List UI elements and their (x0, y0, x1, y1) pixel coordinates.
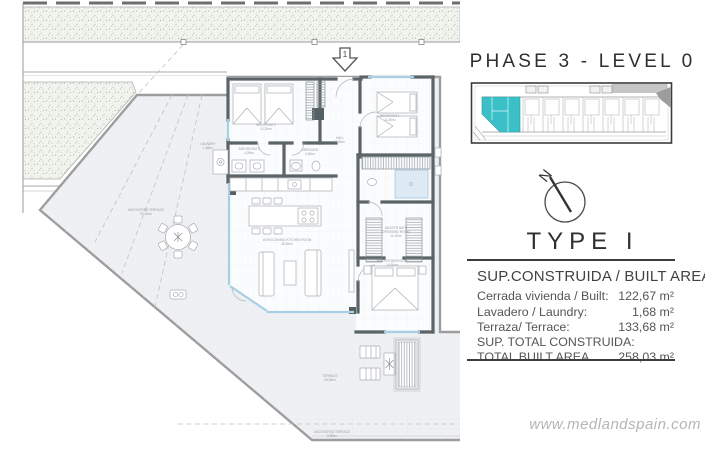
total-value: 258,03 m² (618, 350, 674, 365)
area-table: Cerrada vivienda / Built: 122,67 m² Lava… (477, 289, 674, 336)
divider-top (467, 259, 675, 261)
site-road-band (612, 85, 667, 93)
site-plan-overview (470, 80, 674, 148)
row-label: Cerrada vivienda / Built: (477, 289, 609, 305)
divider-bottom (467, 359, 675, 361)
total-label-line2: TOTAL BUILT AREA (477, 350, 589, 365)
svg-text:11,80m²: 11,80m² (384, 118, 395, 122)
table-row: Lavadero / Laundry: 1,68 m² (477, 305, 674, 321)
svg-text:8,30m²: 8,30m² (335, 140, 345, 144)
built-area-subtitle: SUP.CONSTRUIDA / BUILT AREA (477, 268, 675, 285)
svg-text:4,25m²: 4,25m² (244, 151, 254, 155)
type-title: TYPE I (460, 228, 705, 256)
entrance-number: 1 (343, 50, 348, 59)
svg-text:4,60m²: 4,60m² (305, 152, 315, 156)
watermark: www.medlandspain.com (505, 416, 701, 433)
floor-plan-drawing: 1 LAUNDRY 1,68m² BEDROOM 2 12,30m² BATHR… (0, 0, 460, 454)
entrance-marker: 1 (333, 48, 357, 71)
svg-text:1,68m²: 1,68m² (203, 146, 213, 150)
svg-text:43,35m²: 43,35m² (324, 378, 336, 382)
table-row: Terraza/ Terrace: 133,68 m² (477, 320, 674, 336)
row-value: 133,68 m² (618, 320, 674, 336)
floor-plan-sheet: 1 LAUNDRY 1,68m² BEDROOM 2 12,30m² BATHR… (0, 0, 705, 454)
svg-text:45,30m²: 45,30m² (281, 242, 293, 246)
svg-text:12,30m²: 12,30m² (260, 127, 272, 131)
svg-text:97,00m²: 97,00m² (140, 212, 152, 216)
row-label: Terraza/ Terrace: (477, 320, 570, 336)
row-value: 1,68 m² (632, 305, 674, 321)
svg-text:9,80m²: 9,80m² (327, 434, 337, 438)
svg-text:11,00m²: 11,00m² (390, 234, 401, 238)
phase-level-title: PHASE 3 - LEVEL 0 (460, 51, 705, 73)
row-value: 122,67 m² (618, 289, 674, 305)
svg-text:14,50m²: 14,50m² (386, 263, 398, 267)
table-row: Cerrada vivienda / Built: 122,67 m² (477, 289, 674, 305)
north-compass: N (533, 160, 603, 232)
total-label-line1: SUP. TOTAL CONSTRUIDA: (477, 335, 674, 349)
row-label: Lavadero / Laundry: (477, 305, 587, 321)
